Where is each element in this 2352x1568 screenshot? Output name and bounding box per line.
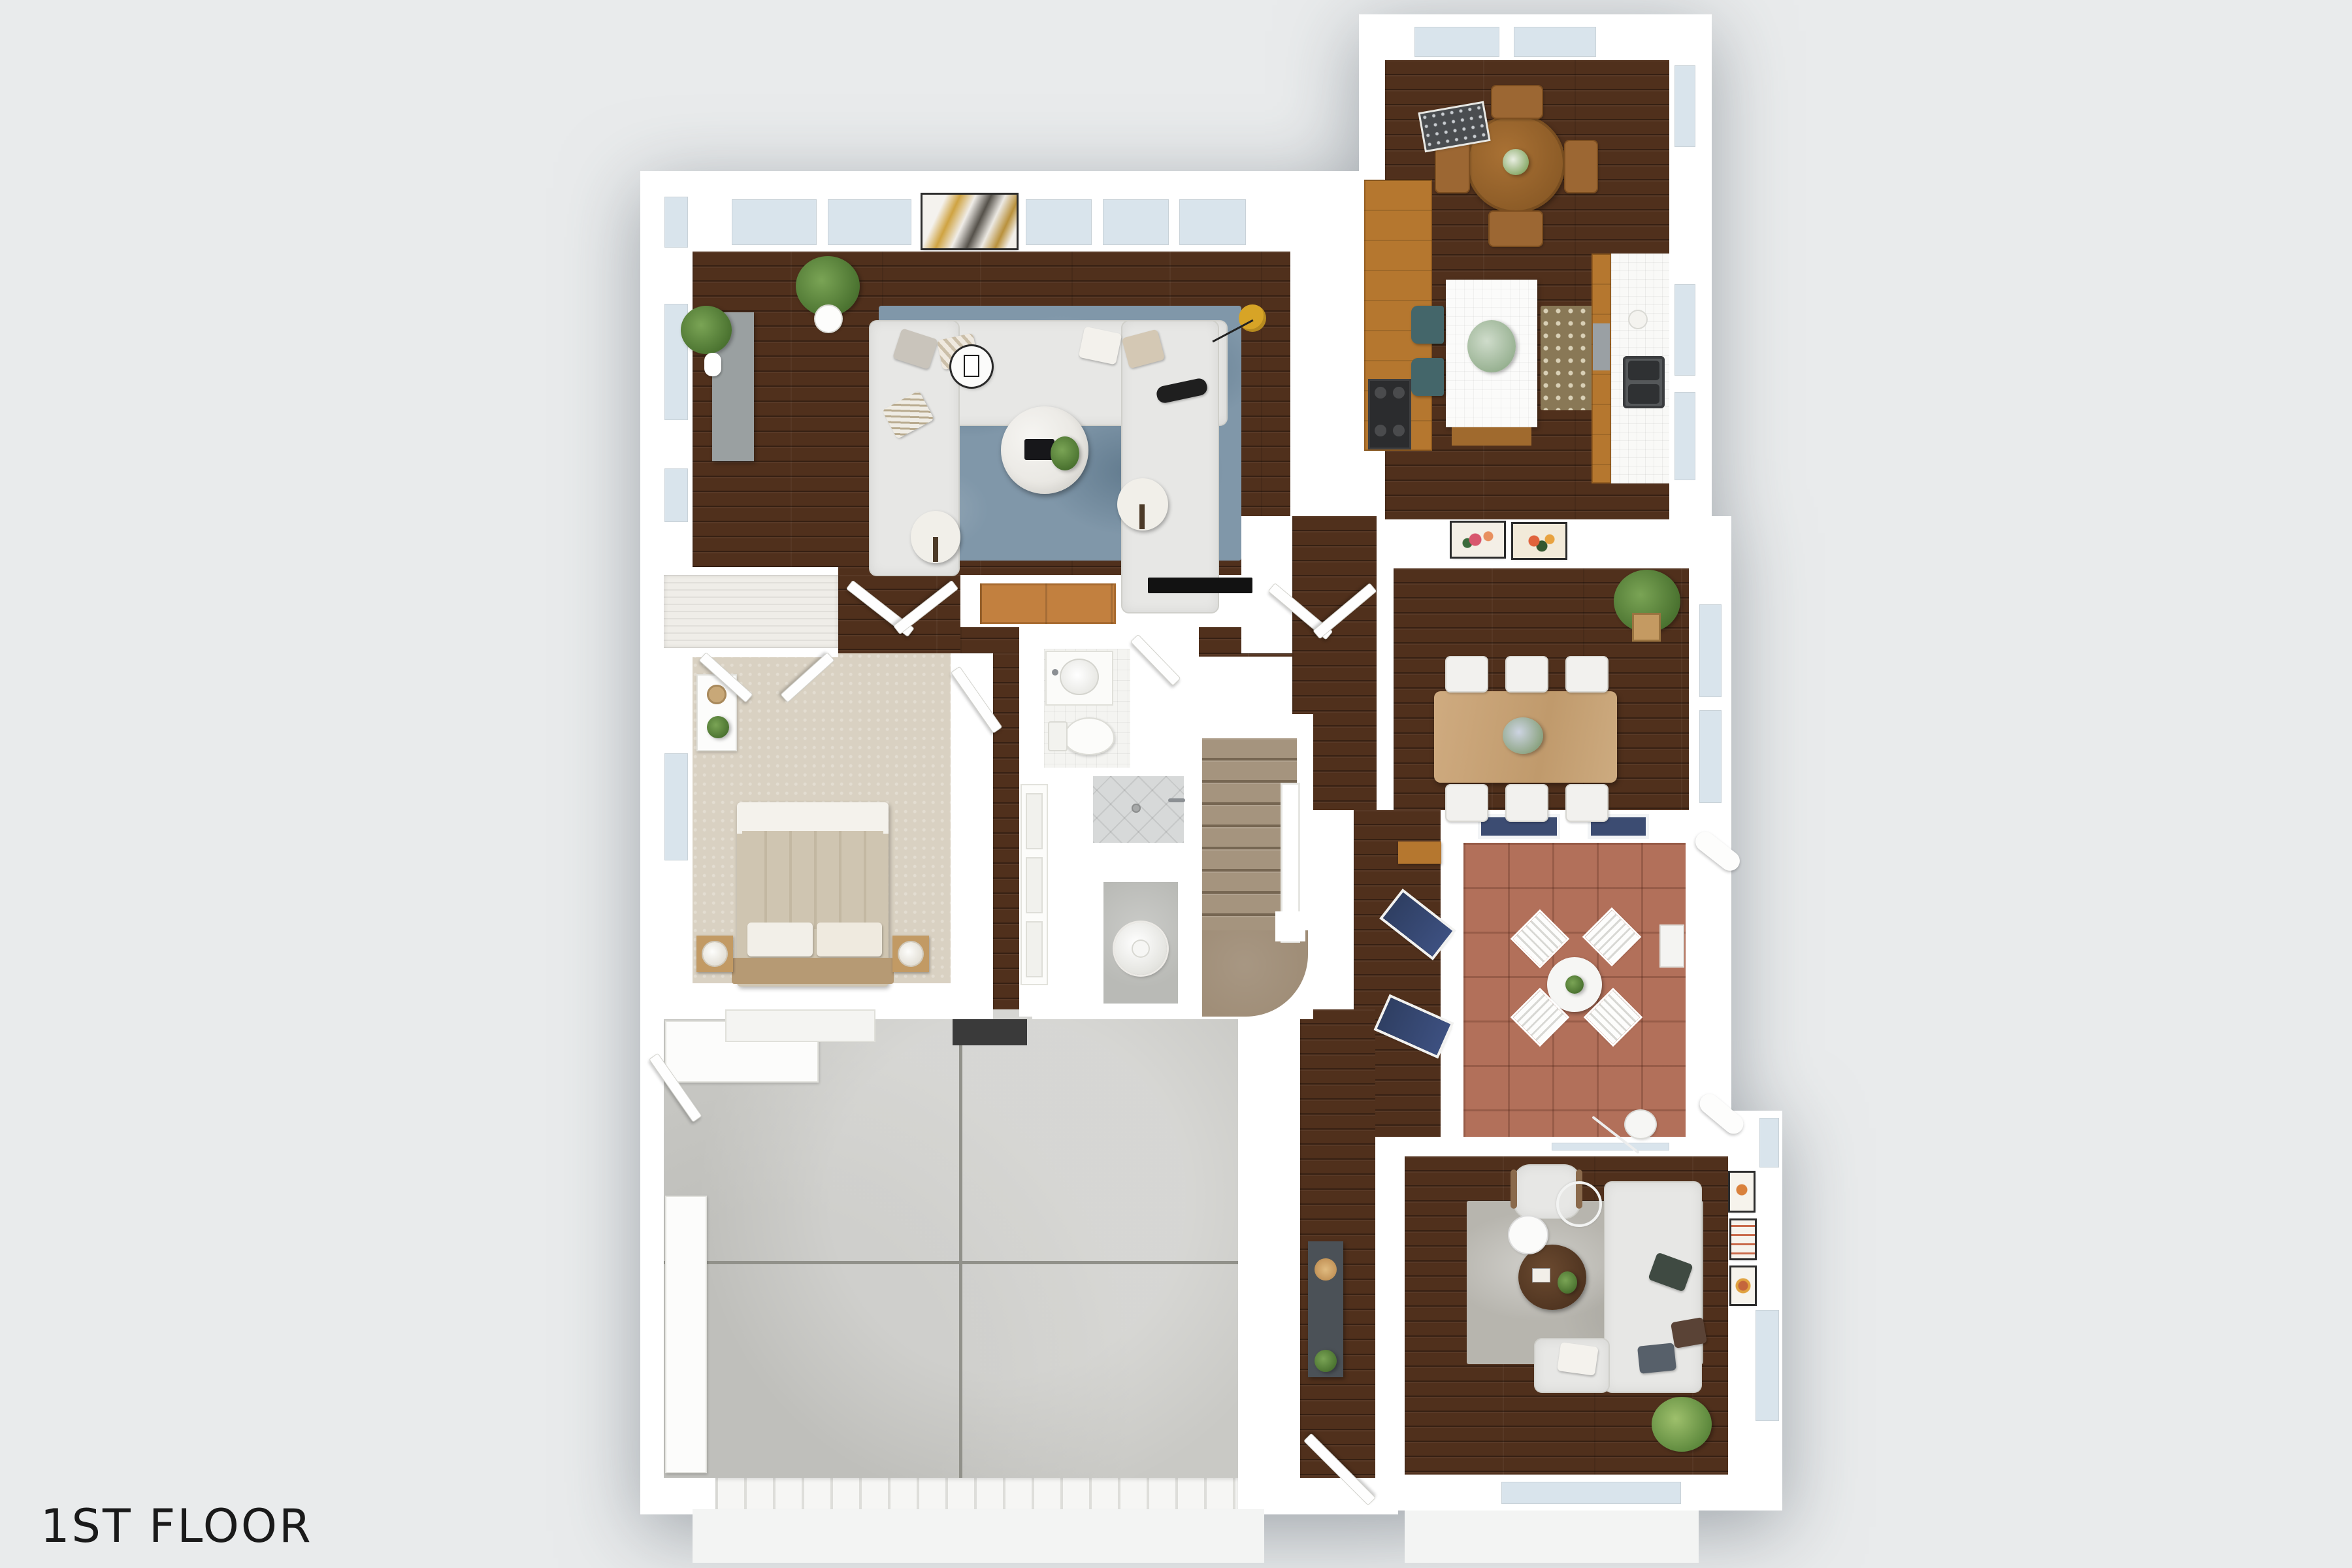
nook-chair-south <box>1488 210 1543 247</box>
garage-east-wall <box>1238 1009 1300 1478</box>
burner-3 <box>1375 425 1386 436</box>
coffee-table-plant <box>1051 436 1079 470</box>
water-heater-cap <box>1132 939 1150 958</box>
nook-chair-east <box>1564 140 1598 193</box>
west-window-1 <box>661 193 691 251</box>
kitchen-east-window-2 <box>1671 281 1699 379</box>
kitchen-east-window-3 <box>1671 389 1699 483</box>
west-window-3 <box>661 465 691 525</box>
dishwasher-panel <box>1593 323 1610 370</box>
dining-chair-n1 <box>1445 656 1488 693</box>
living-window-4 <box>1100 196 1172 248</box>
floorplan-canvas: 1ST FLOOR <box>0 0 2352 1568</box>
patio-table-plant <box>1565 975 1584 994</box>
coffee-table-tray <box>1024 439 1054 460</box>
dining-chair-s2 <box>1505 784 1548 822</box>
kitchen-east-window-1 <box>1671 62 1699 150</box>
garage-cabinet-row <box>725 1009 875 1042</box>
monstera-pot <box>704 353 721 376</box>
patio-west-wall <box>1441 810 1463 1137</box>
garage-seam-horizontal <box>664 1261 1238 1264</box>
family-west-wall <box>1375 1137 1405 1478</box>
family-slider-top <box>1548 1139 1673 1154</box>
family-pillow-white <box>1557 1342 1599 1376</box>
burner-1 <box>1375 387 1386 399</box>
gold-floor-lamp <box>1239 304 1266 332</box>
dining-chair-n3 <box>1565 656 1609 693</box>
garage-cabinet-tall <box>665 1196 707 1473</box>
bed-blanket <box>742 831 883 929</box>
monstera-plant <box>681 306 732 354</box>
laundry-door-panel-3 <box>1026 921 1043 977</box>
island-eucalyptus <box>1467 320 1516 372</box>
family-east-window-lower <box>1752 1307 1782 1424</box>
burner-4 <box>1393 425 1405 436</box>
dining-chair-s3 <box>1565 784 1609 822</box>
arc-lamp-shade <box>1625 1111 1656 1138</box>
closet-bottom-wall <box>661 648 838 657</box>
floral-art-1 <box>1452 523 1504 557</box>
bedroom-window <box>661 750 691 864</box>
pendant-light <box>1629 311 1646 328</box>
fiddle-leaf-pot <box>1632 613 1661 642</box>
stair-rail-cap <box>1275 911 1305 941</box>
coffee-table-sprig <box>1558 1271 1577 1294</box>
dining-west-wall <box>1377 568 1394 810</box>
family-bottom-slider <box>1498 1478 1684 1507</box>
laundry-door-panel-1 <box>1026 793 1043 849</box>
living-window-3 <box>1022 196 1095 248</box>
lamp-right <box>899 942 923 966</box>
living-window-1 <box>728 196 820 248</box>
driveway-apron <box>693 1509 1264 1563</box>
toilet-tank <box>1048 721 1068 751</box>
floor-plan-page: { "floorplan": { "label": "1ST FLOOR", "… <box>0 0 2352 1568</box>
floor-label: 1ST FLOOR <box>41 1499 313 1553</box>
living-wall-art <box>923 195 1017 248</box>
family-pillow-slate <box>1637 1343 1676 1374</box>
teal-stool-2 <box>1411 358 1444 396</box>
patio-east-wall <box>1686 810 1710 1137</box>
rear-porch <box>1405 1511 1699 1563</box>
family-side-table <box>1509 1217 1547 1253</box>
burner-2 <box>1393 387 1405 399</box>
side-table-art <box>965 356 978 376</box>
vanity-faucet <box>1052 669 1058 676</box>
bed-sheet-fold <box>737 802 889 834</box>
family-corner-plant <box>1652 1397 1712 1452</box>
console-plant <box>1315 1350 1337 1372</box>
dining-centerpiece <box>1503 717 1543 754</box>
dresser-plant <box>707 716 729 738</box>
bedroom-closet-interior <box>664 575 838 648</box>
sink-basin-2 <box>1628 384 1659 404</box>
sink-basin-1 <box>1628 361 1659 380</box>
bedroom-east-wall-stub <box>951 653 993 662</box>
coffee-table-book <box>1533 1269 1550 1282</box>
living-right-wall <box>1290 191 1349 516</box>
dining-bay-window-1 <box>1696 601 1725 700</box>
vanity-sink <box>1060 659 1099 695</box>
wall-tv <box>1148 578 1252 593</box>
bed-pillow-2 <box>817 923 882 956</box>
patio-bench-unit <box>1659 924 1684 968</box>
garage-seam-vertical <box>959 1009 962 1478</box>
laundry-door-panel-2 <box>1026 857 1043 913</box>
family-art-3 <box>1731 1267 1755 1304</box>
armchair-arm-left <box>1511 1169 1517 1209</box>
nook-top-window-2 <box>1511 24 1599 60</box>
ottoman-left-strap <box>933 537 938 562</box>
dining-chair-s1 <box>1445 784 1488 822</box>
console-rattan-decor <box>1315 1258 1337 1281</box>
shower-head <box>1168 798 1185 802</box>
nook-top-window-1 <box>1411 24 1503 60</box>
nook-table-flowers <box>1503 149 1529 175</box>
lamp-left <box>703 942 727 966</box>
garage-door <box>715 1478 1238 1509</box>
arc-lamp-ring <box>1556 1181 1602 1227</box>
toilet-bowl <box>1064 717 1115 755</box>
teal-stool-1 <box>1411 306 1444 344</box>
bedroom-east-wall <box>951 732 993 1019</box>
living-window-5 <box>1176 196 1249 248</box>
family-art-1 <box>1730 1173 1754 1211</box>
island-wood-base <box>1452 427 1531 446</box>
dresser-basket <box>707 685 727 704</box>
bed-pillow-1 <box>747 923 813 956</box>
family-east-window-upper <box>1756 1115 1782 1171</box>
dining-bay-window-2 <box>1696 707 1725 806</box>
shower-drain <box>1132 804 1141 813</box>
ottoman-right-strap <box>1139 504 1145 529</box>
floral-art-2 <box>1513 524 1565 558</box>
olive-tree-pot <box>815 306 841 332</box>
dining-chair-n2 <box>1505 656 1548 693</box>
family-art-2 <box>1731 1220 1755 1258</box>
living-window-2 <box>825 196 915 248</box>
entry-bench <box>980 583 1116 624</box>
garage-entry-mat <box>953 1019 1027 1045</box>
nook-chair-north <box>1491 85 1543 119</box>
family-pillow-brown <box>1671 1317 1707 1348</box>
corner-wood-shelf <box>1398 841 1441 864</box>
headboard <box>732 958 894 984</box>
